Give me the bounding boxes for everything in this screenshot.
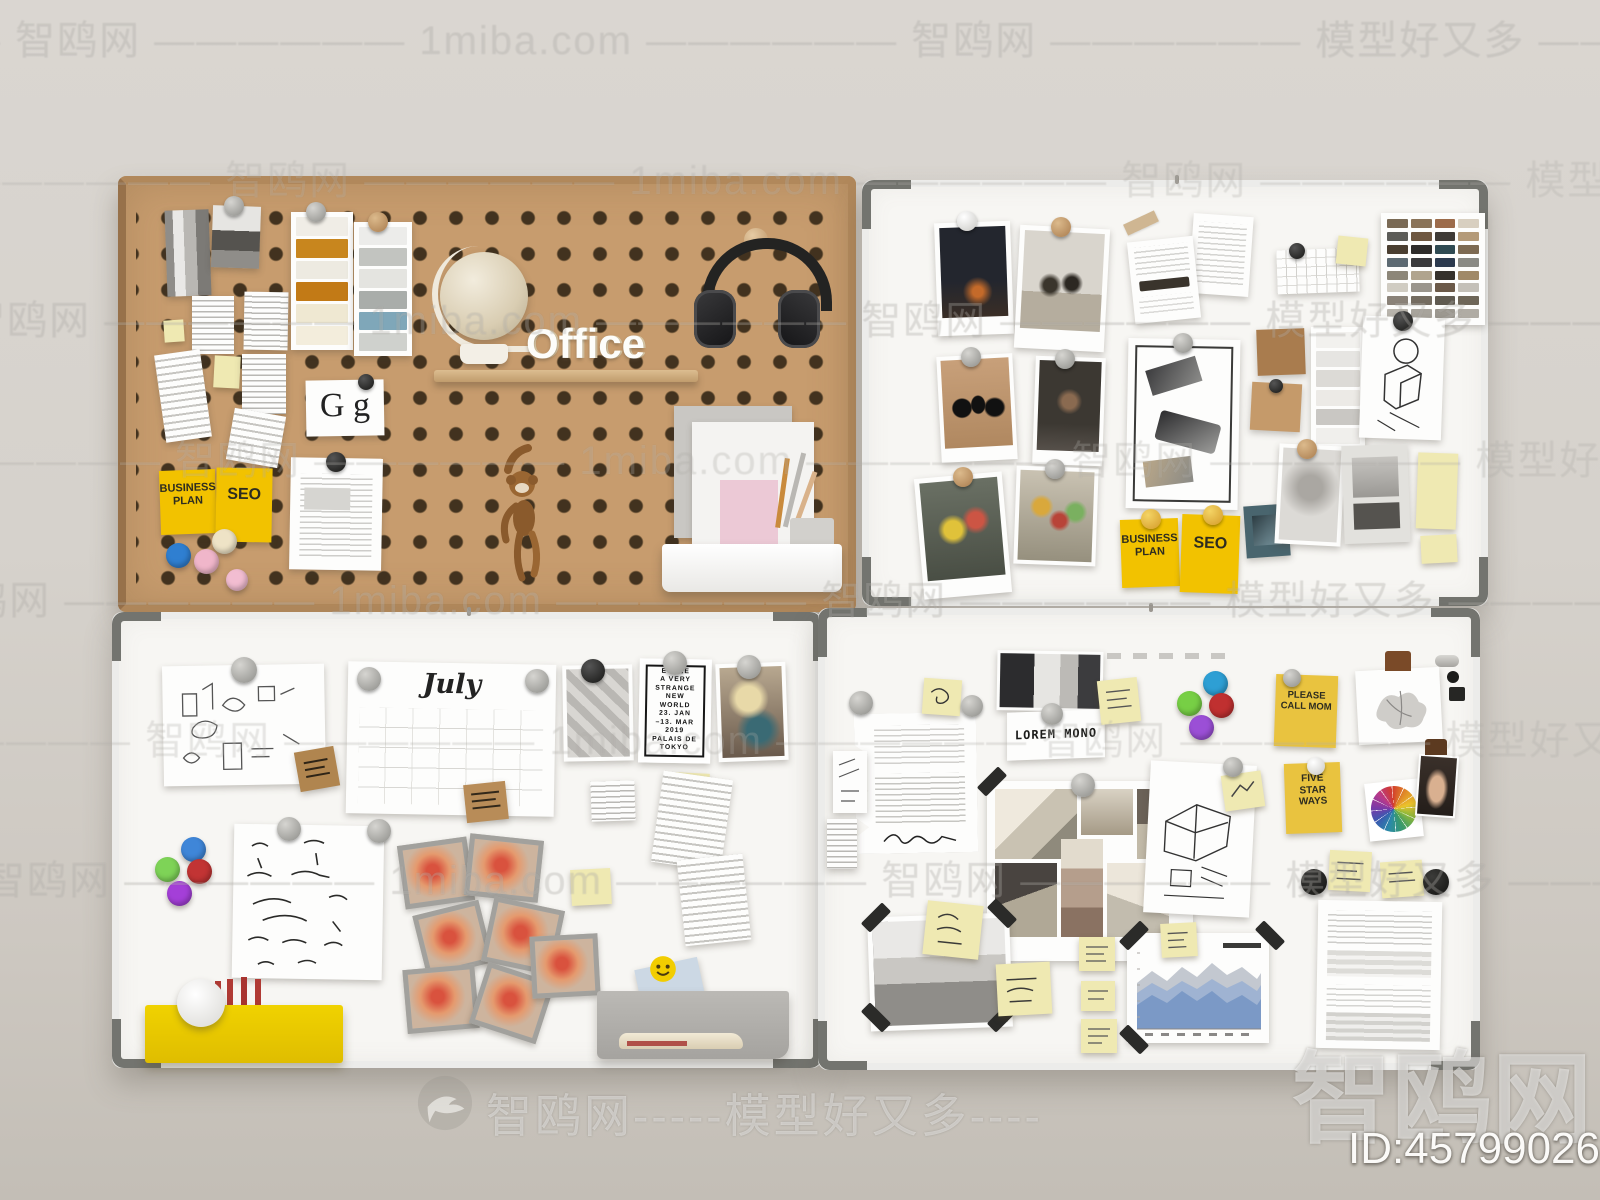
magnet-gray <box>1041 703 1063 725</box>
sticky-note-on-calendar <box>1336 236 1369 267</box>
flower-photo-card <box>1274 443 1345 546</box>
flower-image <box>1279 448 1342 543</box>
receipt-lines <box>1195 221 1247 288</box>
whiteboard-bottom-right: LOREM MONO PLEASE CALL MOM <box>818 608 1480 1070</box>
polaroid-image <box>939 226 1008 318</box>
organizer-note-pink <box>720 480 778 546</box>
scribble <box>1081 1019 1117 1053</box>
red-photo-2 <box>464 833 544 902</box>
photo-image <box>1000 653 1101 709</box>
white-slip-1 <box>590 780 635 822</box>
pin-wood <box>1051 217 1071 237</box>
sticky-on-letter <box>922 678 962 717</box>
binder-clip-2 <box>1425 739 1447 755</box>
report-table <box>1327 950 1431 978</box>
footer-watermark: 智鸥网-----模型好又多---- <box>486 1080 1043 1146</box>
mini-slip-1 <box>833 751 867 813</box>
black-magnet <box>1301 869 1327 895</box>
polaroid-image <box>919 477 1005 581</box>
magnet-dark <box>326 452 346 472</box>
scribble <box>1081 981 1115 1011</box>
corner-bracket <box>1431 608 1480 657</box>
magnet-cluster <box>155 837 225 911</box>
tape-strip <box>1123 210 1159 235</box>
cabinet-base <box>1353 502 1400 530</box>
mindmap-scribbles <box>232 824 385 981</box>
polaroid-couple-2 <box>1032 356 1106 466</box>
silver-clip <box>1435 655 1459 667</box>
sketch-sticky <box>1221 770 1266 811</box>
photo-family <box>1013 466 1098 567</box>
note-card-handwritten-1 <box>243 292 288 351</box>
black-magnet <box>1423 869 1449 895</box>
sticky-column-1 <box>1079 937 1115 971</box>
printed-dashes <box>1107 653 1237 659</box>
polaroid-image <box>940 357 1013 448</box>
note-slip-handwritten <box>226 408 286 468</box>
pin-wood <box>368 212 388 232</box>
red-photo-5 <box>402 964 479 1034</box>
sketch-image <box>1355 667 1443 745</box>
pin-ball <box>1141 509 1161 529</box>
report-lines <box>1328 910 1433 946</box>
scribble <box>922 678 962 717</box>
sticky-list-note <box>570 868 612 906</box>
mini-sketch <box>833 751 867 813</box>
magnet-gray <box>367 819 391 843</box>
receipt-sketch <box>1139 276 1190 291</box>
kraft-tag-note <box>463 781 509 823</box>
magnet-gray <box>1223 757 1243 777</box>
mindmap-note <box>232 824 385 981</box>
photo-image <box>719 666 784 758</box>
red-photo-7 <box>529 933 600 998</box>
sticky-note-right <box>1416 452 1459 529</box>
corner-bracket <box>1439 557 1488 606</box>
magnet-gray <box>961 695 983 717</box>
magnet-gray <box>849 691 873 715</box>
small-sticky-b <box>1380 860 1424 899</box>
seo-note-2: SEO <box>1180 514 1241 594</box>
color-swatch-grid <box>1381 213 1485 325</box>
floral-sketch-card <box>1355 667 1443 745</box>
magnet-gray <box>525 669 549 693</box>
pin-white <box>957 211 977 231</box>
magnet-gray <box>277 817 301 841</box>
sticky-column-3 <box>1081 1019 1117 1053</box>
pin-gray <box>224 196 244 216</box>
paint-swatch-card-cool <box>354 222 412 356</box>
scribble <box>1221 770 1266 811</box>
globe-arc <box>432 246 534 352</box>
magnet-cluster-2 <box>1177 671 1247 745</box>
corner-bracket <box>112 612 161 661</box>
letter-lines <box>874 724 965 766</box>
magnet-dark <box>1269 379 1283 393</box>
furniture-sketch-card <box>1359 316 1445 441</box>
globe-base <box>460 344 508 364</box>
headphone-cup-right <box>778 290 820 348</box>
kraft-note-1 <box>1256 328 1306 376</box>
scribble <box>996 962 1053 1017</box>
magnet-dark <box>1393 311 1413 331</box>
pegboard-magnet-dots <box>166 529 256 595</box>
corner-bracket <box>862 180 911 229</box>
stapler-detail <box>627 1041 687 1046</box>
polaroid-kids <box>914 471 1012 599</box>
figure-photo <box>1415 754 1459 819</box>
pin-wood <box>953 467 973 487</box>
note-card-handwritten-2 <box>242 354 286 414</box>
smiley-magnet <box>649 955 677 983</box>
magnet-dark <box>581 659 605 683</box>
wall-scene: G g BUSINESS PLAN SEO Office <box>0 0 1600 1200</box>
paint-swatch-card-warm <box>291 212 353 350</box>
pin-gray <box>961 347 981 367</box>
sticky-note-mini <box>163 319 184 342</box>
polaroid-image <box>1037 360 1102 452</box>
pin-gray <box>1173 333 1193 353</box>
red-photo-1 <box>397 836 475 909</box>
pegboard-panel: G g BUSINESS PLAN SEO Office <box>118 176 856 612</box>
document-text-lines <box>299 473 372 558</box>
scribble <box>1380 860 1424 899</box>
organizer-tray <box>662 544 842 592</box>
black-clip <box>1449 687 1465 701</box>
corner-bracket <box>818 1021 867 1070</box>
area-chart-card <box>1127 933 1269 1043</box>
kraft-mini-note <box>294 746 340 792</box>
magnet-white <box>1307 757 1325 775</box>
whiteboard-bottom-left: July ECOLE A VERY STRANGE NEW WORLD 23. … <box>112 612 822 1068</box>
image-id-label: ID:457990262 <box>1348 1124 1600 1174</box>
headphone-cup-left <box>694 290 736 348</box>
receipt-document-1 <box>1127 236 1201 324</box>
hanger-mark <box>1175 175 1179 184</box>
corner-bracket <box>818 608 867 657</box>
sticky-over-photo <box>922 900 983 960</box>
area-chart <box>1127 933 1269 1043</box>
handwritten-slip-2 <box>677 854 752 946</box>
pin-gray <box>1045 459 1065 479</box>
typography-card-gg: G g <box>306 379 385 436</box>
hanger-mark <box>467 607 471 616</box>
sticky-note-2 <box>1097 677 1141 725</box>
cabinet-image <box>1352 456 1399 498</box>
cabinet-render-card <box>1341 444 1410 544</box>
scribble <box>1079 937 1115 971</box>
polaroid-image <box>1020 230 1105 332</box>
pin-ball <box>1203 505 1223 525</box>
watermark-text: —————— 智鸥网 —————— 1miba.com —————— 智鸥网 —… <box>0 8 1600 66</box>
magnet-gray <box>1071 773 1095 797</box>
mini-slip-2 <box>827 819 857 869</box>
scribble <box>1160 922 1198 958</box>
scribble <box>1328 850 1372 892</box>
magnet-silver <box>1283 669 1301 687</box>
report-lines <box>1326 984 1430 1010</box>
note-card-price-list <box>192 296 234 354</box>
pin-wood <box>1297 439 1317 459</box>
headphones <box>692 228 824 360</box>
magnet-dark <box>358 374 374 390</box>
polaroid-silhouettes <box>936 353 1017 463</box>
desk-organizer <box>662 406 842 592</box>
corner-bracket <box>773 612 822 661</box>
round-magnet-white <box>177 979 225 1027</box>
office-sign: Office <box>526 320 686 370</box>
receipt-document-2 <box>1188 213 1253 297</box>
sketch-lines <box>1359 316 1445 441</box>
magnet-gray <box>231 657 257 683</box>
globe <box>432 244 536 372</box>
magnet-gray <box>357 667 381 691</box>
scribble <box>922 900 983 960</box>
document-sheet <box>289 457 383 571</box>
collage-cell <box>1081 789 1133 835</box>
letter-lines <box>875 772 966 826</box>
receipt-lines <box>1139 292 1195 316</box>
receipt-lines <box>1133 242 1190 277</box>
kraft-scribble <box>294 746 340 792</box>
shelf-tray-gray <box>597 991 789 1059</box>
collage-cell <box>1061 839 1103 937</box>
seagull-logo <box>416 1074 474 1132</box>
color-wheel-disc <box>1369 784 1420 835</box>
polaroid-night <box>934 221 1014 337</box>
calendar-grid <box>358 707 544 806</box>
photo-image <box>1017 470 1094 563</box>
kraft-scribble <box>463 781 509 823</box>
black-pin <box>1447 671 1459 683</box>
letter-document <box>854 712 978 854</box>
sticky-column-2 <box>1081 981 1115 1011</box>
hanger-mark <box>1149 603 1153 612</box>
magnet-gray <box>737 655 761 679</box>
scribble <box>1097 677 1141 725</box>
please-call-mom-note: PLEASE CALL MOM <box>1274 674 1338 748</box>
sticky-beside-photo <box>996 962 1053 1017</box>
pin-gray <box>306 202 326 222</box>
small-sticky-a <box>1328 850 1372 892</box>
business-plan-note: BUSINESS PLAN <box>159 469 217 535</box>
binder-clip <box>1385 651 1411 671</box>
document-block <box>304 487 350 510</box>
corner-bracket <box>862 557 911 606</box>
polaroid-couple <box>1014 225 1110 353</box>
monkey-toy <box>492 442 562 592</box>
gray-swatch-strip <box>1311 327 1365 449</box>
marker-tray-yellow <box>145 1005 343 1063</box>
wall-shelf <box>434 370 698 382</box>
sticky-on-chart <box>1160 922 1198 958</box>
magnet-gray <box>663 651 687 675</box>
signature <box>880 828 960 847</box>
photo-image <box>1417 756 1457 816</box>
whiteboard-top-right: BUSINESS PLAN SEO <box>862 180 1488 606</box>
magnet-dark <box>1289 243 1305 259</box>
photo-interior-1 <box>165 209 212 296</box>
pin-gray <box>1055 349 1075 369</box>
sticky-note-mini-2 <box>213 355 241 388</box>
camera-collage-card <box>1126 338 1241 510</box>
sticky-note-right-2 <box>1420 534 1457 564</box>
